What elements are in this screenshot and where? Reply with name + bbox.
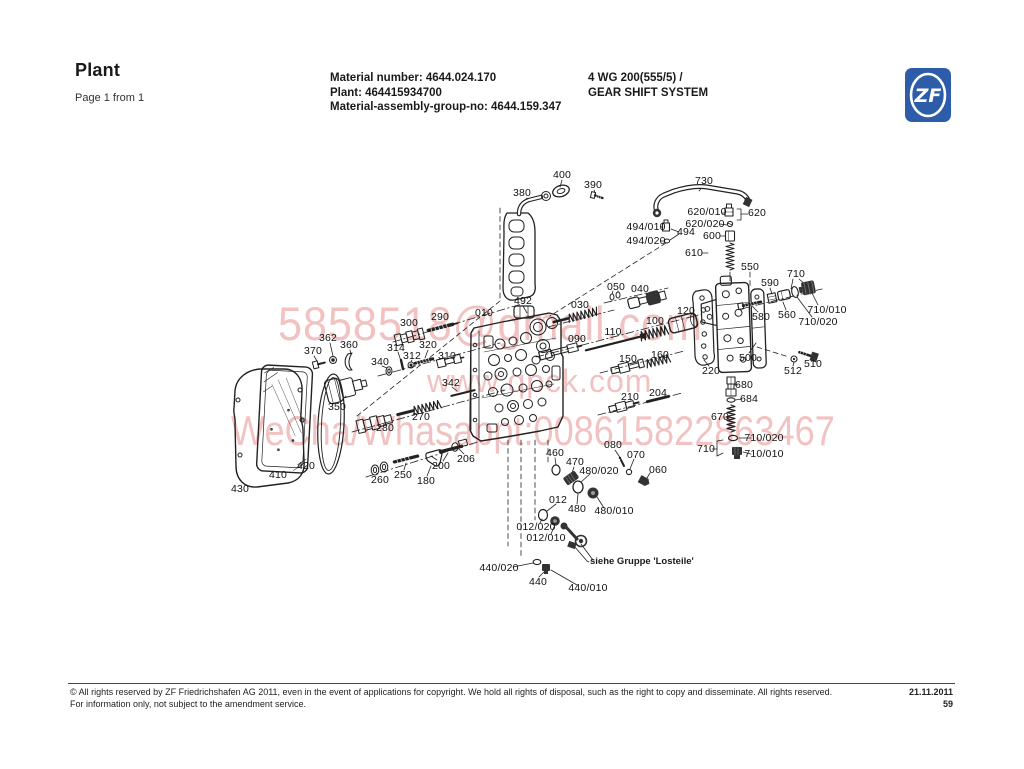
part-chain-680-710 bbox=[726, 377, 742, 459]
parts-catalog-page: Plant Page 1 from 1 Material number: 464… bbox=[0, 0, 1024, 769]
exploded-parts-diagram bbox=[0, 0, 1024, 769]
part-spool-280 bbox=[356, 412, 393, 433]
part-chain-620-610 bbox=[725, 204, 735, 281]
part-bolt-510 bbox=[791, 348, 819, 362]
part-manifold-380 bbox=[503, 192, 551, 301]
part-plate-500 bbox=[751, 289, 767, 368]
part-bolt-390 bbox=[590, 192, 603, 200]
part-494 bbox=[663, 220, 670, 243]
part-gasket-430 bbox=[234, 369, 304, 487]
part-solenoid-350 bbox=[324, 371, 370, 404]
construction-lines bbox=[357, 208, 789, 557]
part-pipe-730 bbox=[653, 186, 753, 217]
part-flange-400 bbox=[551, 183, 571, 199]
part-rod-290 bbox=[428, 321, 458, 332]
part-small-fittings bbox=[312, 353, 464, 375]
part-valve-body-010 bbox=[470, 306, 563, 441]
part-train-bottom-left bbox=[371, 439, 467, 475]
part-ring-420 bbox=[315, 373, 346, 474]
loose-parts-note: siehe Gruppe 'Losteile' bbox=[590, 556, 694, 567]
